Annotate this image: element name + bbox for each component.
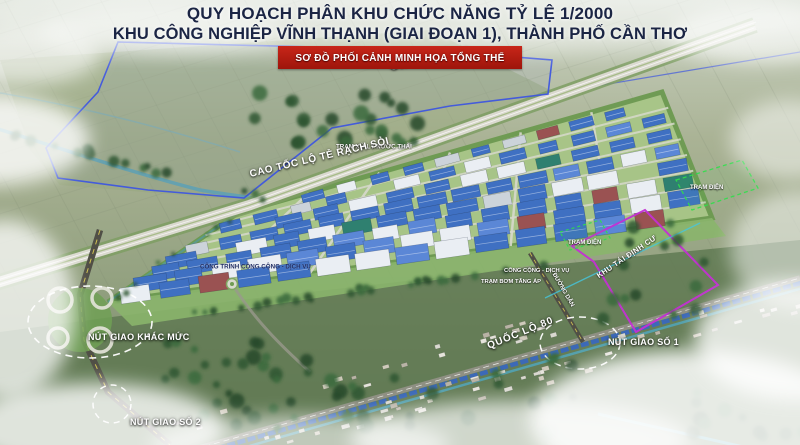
masterplan-rendering: GIAI ĐOẠN 2 TRẠM XỬ LÝ NƯỚC THẢI CAO TỐC… [0,0,800,445]
page-title-line1: QUY HOẠCH PHÂN KHU CHỨC NĂNG TỶ LỆ 1/200… [0,4,800,24]
label-power-station-right: TRẠM ĐIỆN [690,185,723,191]
title-block: QUY HOẠCH PHÂN KHU CHỨC NĂNG TỶ LỆ 1/200… [0,0,800,69]
red-banner: SƠ ĐỒ PHỐI CẢNH MINH HỌA TỔNG THỂ [278,46,522,69]
label-interchange: NÚT GIAO KHÁC MỨC [88,333,190,342]
label-public-service-left: CÔNG TRÌNH CÔNG CỘNG - DỊCH VỤ [200,264,311,270]
label-junction-2: NÚT GIAO SỐ 2 [130,418,201,427]
red-banner-text: SƠ ĐỒ PHỐI CẢNH MINH HỌA TỔNG THỂ [295,53,504,64]
label-public-service-center: CÔNG CỘNG - DỊCH VỤ [504,268,569,274]
label-junction-1: NÚT GIAO SỐ 1 [608,338,679,347]
label-pump-station: TRẠM BƠM TĂNG ÁP [481,279,541,285]
label-power-station-inner: TRẠM ĐIỆN [568,240,601,246]
page-title-line2: KHU CÔNG NGHIỆP VĨNH THẠNH (GIAI ĐOẠN 1)… [0,25,800,44]
